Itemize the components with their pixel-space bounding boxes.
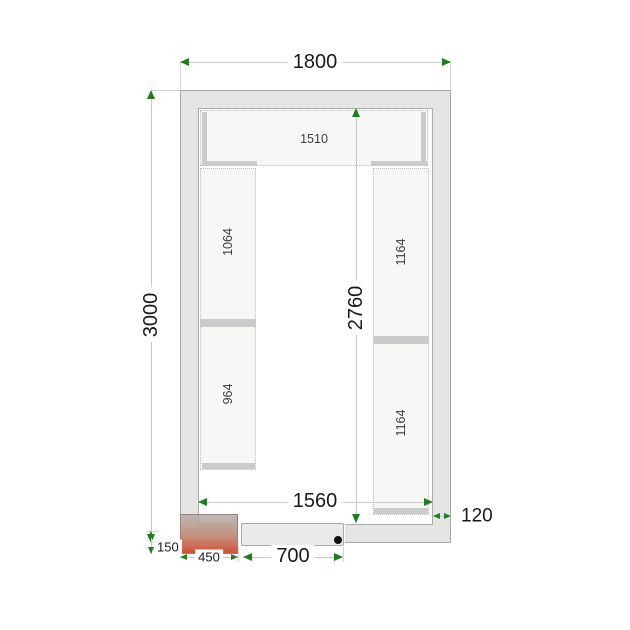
dim-arrow-right-icon xyxy=(424,498,433,506)
extension-line xyxy=(238,546,239,562)
inner-width-label: 1560 xyxy=(288,490,343,512)
shelf-end-bar xyxy=(202,463,255,469)
shelf-upright-bar xyxy=(202,112,207,163)
shelf-divider-bar xyxy=(373,336,429,344)
dim-arrow-left-icon xyxy=(180,58,189,66)
dim-arrow-down-icon xyxy=(352,514,360,523)
shelf-upright-bar xyxy=(202,161,257,166)
dim-arrow-left-icon xyxy=(243,553,252,561)
shelf-left-lower-length-label: 964 xyxy=(222,384,235,405)
inner-height-label: 2760 xyxy=(345,281,367,336)
floor-plan-drawing: 1510 1064 964 1164 1164 1800 3000 2760 1… xyxy=(0,0,630,630)
dim-arrow-up-icon xyxy=(147,90,155,99)
door-hinge-dot xyxy=(334,536,342,544)
door-leaf xyxy=(241,523,344,546)
door-width-label: 700 xyxy=(271,545,314,567)
unit-protrusion-label: 150 xyxy=(154,540,182,555)
extension-line xyxy=(152,90,180,91)
unit-width-label: 450 xyxy=(195,550,223,565)
dim-arrow-right-icon xyxy=(442,58,451,66)
extension-line xyxy=(180,62,181,89)
dim-arrow-up-icon xyxy=(352,108,360,117)
extension-line xyxy=(343,546,344,562)
shelf-divider-bar xyxy=(200,319,256,327)
dim-arrow-up-icon xyxy=(148,531,154,538)
dim-arrow-left-icon xyxy=(433,513,440,519)
shelf-top-length-label: 1510 xyxy=(300,133,328,146)
shelf-upright-bar xyxy=(371,161,428,166)
dim-arrow-right-icon xyxy=(231,554,238,560)
shelf-right-upper-length-label: 1164 xyxy=(395,239,408,266)
dim-arrow-right-icon xyxy=(334,553,343,561)
dim-arrow-left-icon xyxy=(180,554,187,560)
shelf-right-lower-length-label: 1164 xyxy=(395,410,408,437)
dim-arrow-right-icon xyxy=(444,513,451,519)
extension-line xyxy=(450,62,451,89)
wall-thickness-label: 120 xyxy=(456,506,498,527)
outer-width-label: 1800 xyxy=(288,51,343,73)
shelf-left-upper-length-label: 1064 xyxy=(222,228,235,256)
shelf-upright-bar xyxy=(421,112,426,163)
dim-arrow-left-icon xyxy=(198,498,207,506)
shelf-end-bar xyxy=(374,508,428,514)
condensing-unit xyxy=(180,514,238,554)
outer-height-label: 3000 xyxy=(140,288,162,343)
